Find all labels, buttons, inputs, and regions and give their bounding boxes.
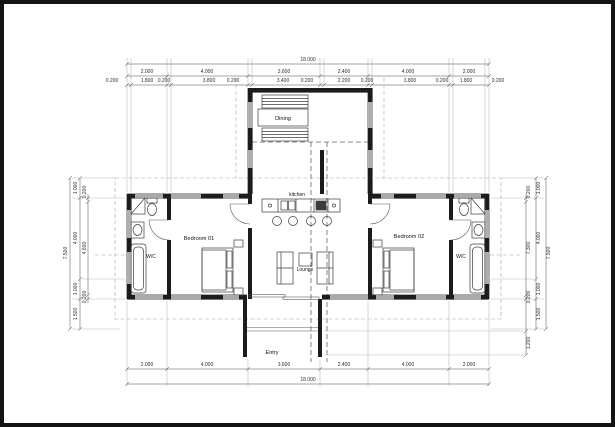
pillow-icon	[227, 251, 232, 268]
dim-top-detail-12: 0.200	[492, 78, 505, 84]
dim-top-detail-8: 0.200	[361, 78, 374, 84]
dim-left-mid-1: 4.000	[73, 232, 79, 245]
nightstand	[373, 240, 382, 247]
dim-left-outer: 7.500	[63, 247, 69, 260]
dim-right-inner-0: 0.200	[526, 186, 532, 199]
dim-left-mid-0: 1.000	[73, 182, 79, 195]
dim-right-outer: 7.500	[546, 247, 552, 260]
dim-left-mid-3: 1.500	[73, 308, 79, 321]
stool-icon	[273, 217, 282, 226]
dim-right-inner-1: 7.300	[526, 242, 532, 255]
nightstand	[234, 288, 243, 295]
room-label-entry: Entry	[265, 350, 278, 356]
pillow-icon	[384, 251, 389, 268]
room-label-kitchen: kitchen	[289, 192, 305, 198]
dim-top-detail-4: 0.200	[227, 78, 240, 84]
room-label-bedroom2: Bedroom 02	[394, 234, 424, 240]
floor-plan-page: 18.000 2.000 4.000 3.600 2.400 4.000 2.0…	[0, 0, 615, 427]
dim-bottom-main-5: 2.000	[463, 362, 476, 368]
dim-left-inner-1: 4.600	[82, 242, 88, 255]
entry-sliding-door-icon	[249, 295, 285, 298]
dim-top-detail-7: 2.200	[338, 78, 351, 84]
dim-bottom-overall: 18.000	[300, 377, 316, 383]
dim-top-main-1: 4.000	[201, 69, 214, 75]
dim-top-detail-0: 0.200	[106, 78, 119, 84]
dim-top-detail-5: 3.400	[277, 78, 290, 84]
coffee-table	[299, 253, 312, 266]
room-label-wc-right: W/C	[456, 254, 466, 260]
dim-top-overall: 18.000	[300, 57, 316, 63]
dim-bottom-main-3: 2.400	[338, 362, 351, 368]
dim-left-mid-2: 1.000	[73, 283, 79, 296]
nightstand	[373, 288, 382, 295]
dim-top-detail-6: 0.200	[301, 78, 314, 84]
wc-right-fixtures	[459, 198, 485, 293]
toilet-tank	[147, 198, 157, 203]
wc-left-fixtures	[131, 198, 157, 293]
room-label-bedroom1: Bedroom 01	[184, 236, 214, 242]
sink-icon	[281, 201, 288, 210]
dim-entry-depth: 1.200	[526, 337, 532, 350]
dim-bottom-main-4: 4.000	[402, 362, 415, 368]
dim-left-inner-0: 0.200	[82, 186, 88, 199]
pillow-icon	[384, 271, 389, 288]
dim-top-detail-2: 0.200	[158, 78, 171, 84]
dim-top-detail-1: 1.800	[141, 78, 154, 84]
bedroom1-door-icon	[230, 204, 250, 224]
stove-icon	[316, 201, 326, 210]
nightstand	[234, 240, 243, 247]
dim-right-mid-0: 1.000	[536, 182, 542, 195]
dim-top-detail-9: 3.800	[404, 78, 417, 84]
pillow-icon	[227, 271, 232, 288]
dim-top-detail-3: 3.800	[203, 78, 216, 84]
dim-top-main-5: 2.000	[463, 69, 476, 75]
dim-top-main-0: 2.000	[141, 69, 154, 75]
dim-top-detail-11: 1.800	[460, 78, 473, 84]
dim-bottom-main-1: 4.000	[201, 362, 214, 368]
stool-icon	[289, 217, 298, 226]
entry-step	[247, 328, 318, 332]
dim-right-mid-3: 1.500	[536, 308, 542, 321]
sink-icon	[474, 225, 483, 236]
floor-plan-drawing: 18.000 2.000 4.000 3.600 2.400 4.000 2.0…	[0, 0, 615, 427]
bed-2	[373, 240, 414, 295]
bedroom2-door-icon	[370, 204, 390, 224]
dim-top-main-3: 2.400	[338, 69, 351, 75]
sink-icon	[133, 225, 142, 236]
dim-left-inner-2: 0.200	[82, 291, 88, 304]
room-label-wc-left: W/C	[146, 254, 156, 260]
dim-bottom-main-0: 2.000	[141, 362, 154, 368]
dim-bottom-main-2: 3.600	[278, 362, 291, 368]
bed-1	[202, 240, 243, 295]
dim-top-detail-10: 0.200	[436, 78, 449, 84]
room-label-dining: Dining	[275, 116, 291, 122]
dim-right-mid-1: 4.000	[536, 232, 542, 245]
dim-right-inner-2: 0.200	[526, 291, 532, 304]
room-label-lounge: Lounge	[297, 267, 314, 273]
dim-top-main-4: 4.000	[402, 69, 415, 75]
toilet-icon	[148, 204, 157, 216]
toilet-icon	[460, 204, 469, 216]
wc-right-door-icon	[451, 220, 471, 240]
dim-right-mid-2: 1.000	[536, 283, 542, 296]
roof-dashed-lines	[95, 78, 520, 319]
section-dashed-lines	[252, 142, 368, 362]
kitchen-counter	[262, 199, 340, 226]
toilet-tank	[459, 198, 469, 203]
wc-left-door-icon	[149, 220, 169, 240]
dim-top-main-2: 3.600	[278, 69, 291, 75]
